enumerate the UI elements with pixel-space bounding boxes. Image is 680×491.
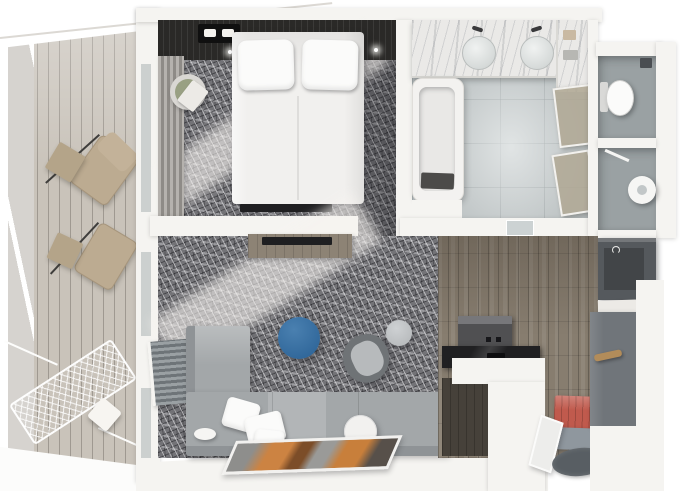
appliance-knob [496,337,501,342]
hall-lower-wall [590,426,636,491]
vessel-sink-left [462,36,496,70]
bathroom-glass-entry-door [506,220,534,236]
bed-pillow-right [301,39,358,90]
vessel-sink-right [520,36,554,70]
round-lounge-chair [170,74,206,110]
spotlight [374,48,378,52]
light-slot [204,29,216,37]
window-glass [141,64,151,212]
wall-shelf-item [640,58,652,68]
partition-wall-bathroom [400,218,598,236]
window-glass [141,388,151,458]
hanging-rod [594,349,623,362]
shelf-towel [563,50,578,60]
appliance-knob [486,337,491,342]
floor-dish [194,428,216,440]
squeegee [605,149,630,162]
appliance-unit [458,316,512,348]
wardrobe-panel [590,312,636,426]
room-balcony [0,0,158,491]
shelf-towel [563,30,576,40]
partition-wall-bedroom [150,216,358,236]
grey-pouf [386,320,412,346]
wc-room [598,56,656,138]
bedroom-tv [240,204,332,212]
shower-tray [628,176,656,204]
closet-hook [612,246,620,254]
wc-shower-divider [598,138,656,148]
shower-room [598,148,656,230]
hall-right-column [636,280,664,491]
toilet [606,80,634,116]
counter-white-top [452,358,545,384]
floor-plan [0,0,680,491]
outer-wall-right [656,42,676,238]
living-tv [262,237,332,245]
shower-drain [637,185,647,195]
double-bed [232,32,364,204]
bathtub [412,78,464,202]
blue-ottoman [278,317,320,359]
window-glass [141,252,151,336]
bed-pillow-left [237,39,294,90]
wall-bedroom-bathroom [396,20,412,236]
dark-base-cabinet [442,378,488,456]
floor-artwork [221,435,402,475]
wc-block-top-wall [596,42,662,56]
bath-tray [421,172,455,189]
duvet-seam [297,96,299,200]
